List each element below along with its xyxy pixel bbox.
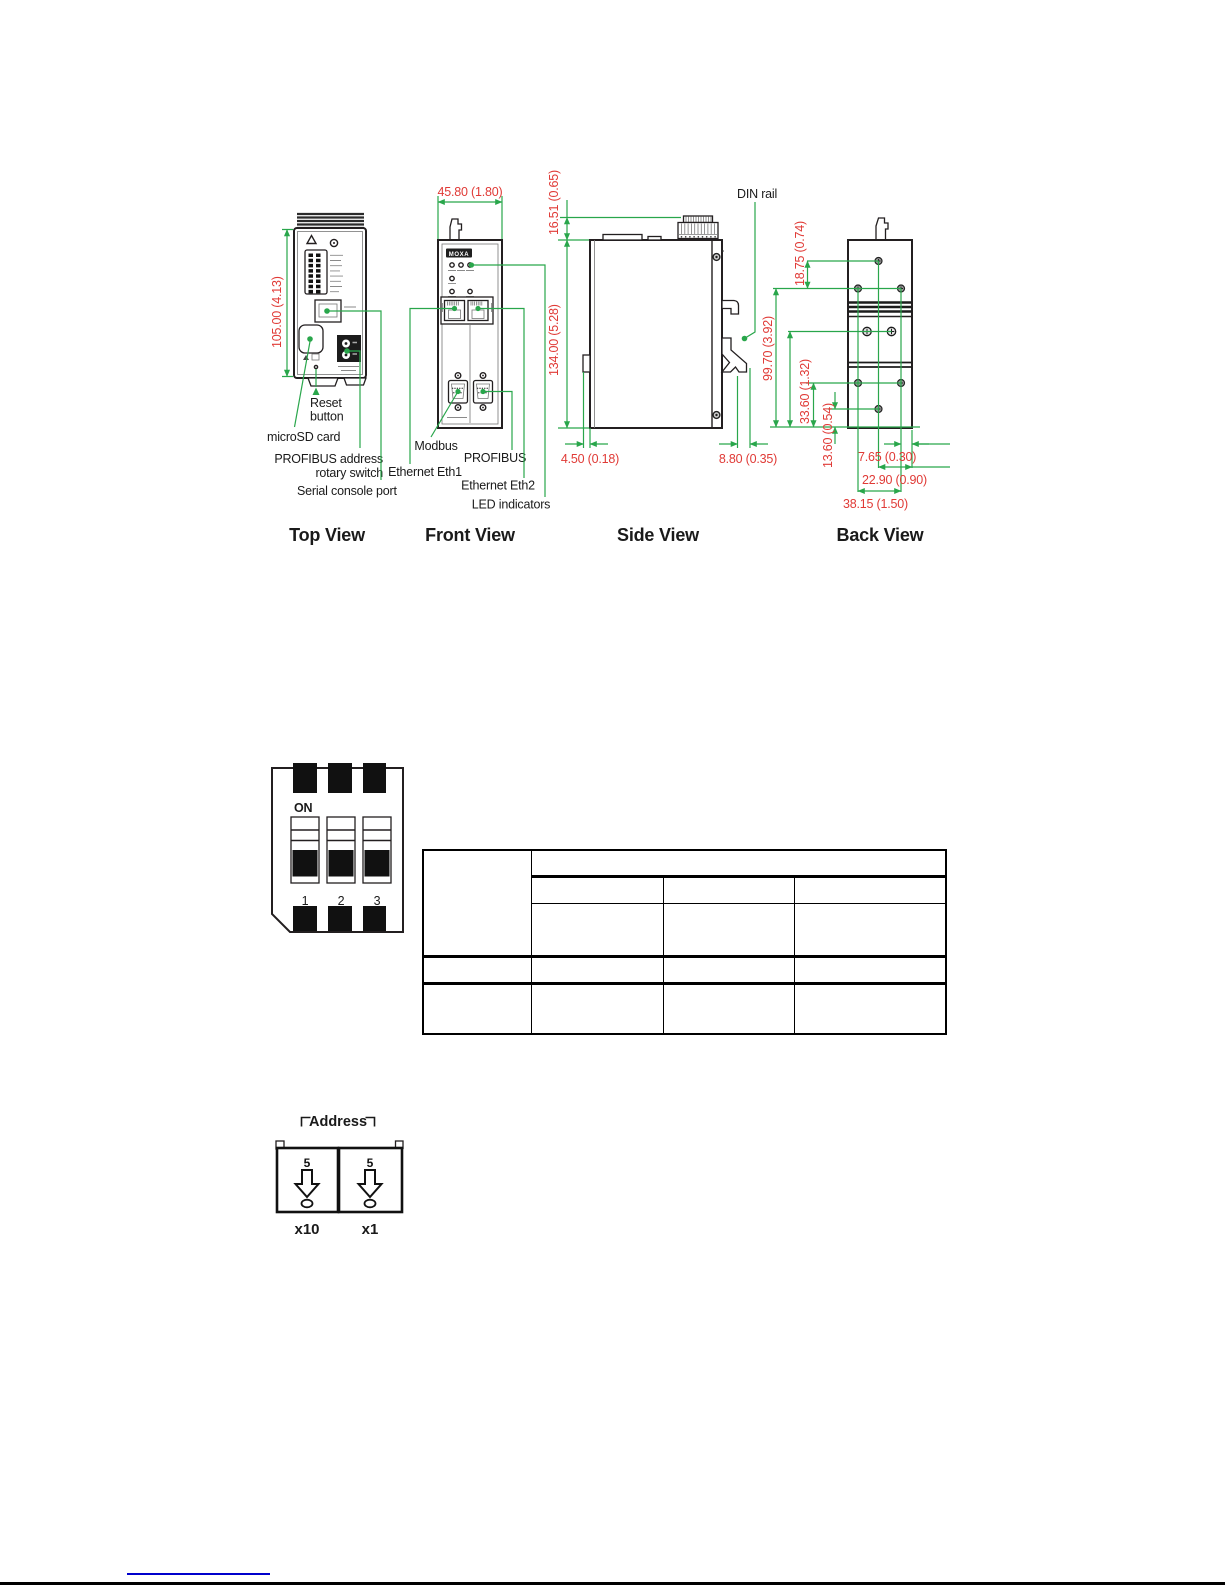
view-caption-front: Front View [425,525,516,545]
table-cell [794,876,946,903]
rotary-label-x1: x1 [362,1221,379,1238]
terminal-block-side [678,216,718,239]
top-view-height-dimension: 105.00 (4.13) [270,230,293,377]
table-cell [663,983,794,1034]
ethernet-ports [441,297,493,324]
callout-label-profibus: PROFIBUS [464,451,526,465]
table-cell [531,903,663,956]
footer-link-underline[interactable] [127,1573,270,1575]
dip-position-2: 2 [338,894,345,908]
bottom-connector [308,378,338,386]
dip-slider-3 [363,817,391,883]
table-cell [531,956,663,983]
table-cell [663,876,794,903]
table-cell [794,983,946,1034]
rotary-address-drawing: Address 5 5 x10 x1 [276,1114,403,1238]
dip-position-1: 1 [302,894,309,908]
side-view-body [590,240,722,428]
svg-text:MOXA: MOXA [449,252,469,258]
dip-position-3: 3 [374,894,381,908]
callout-label-profibus-address: PROFIBUS address [274,452,383,466]
dim-label-front-width: 45.80 (1.80) [437,185,502,199]
view-caption-side: Side View [617,525,700,545]
moxa-logo: MOXA [446,249,472,259]
dim-label-bottom-screw: 13.60 (0.54) [821,403,835,468]
rotary-switch-x1: 5 [339,1148,402,1212]
dim-label-body-height: 134.00 (5.28) [547,304,561,376]
dim-label-top-height: 105.00 (4.13) [270,276,284,348]
dim-label-width-mid: 22.90 (0.90) [862,473,927,487]
dim-label-screw-span: 99.70 (3.92) [761,316,775,381]
dip-on-label: ON [294,801,313,815]
table-cell [423,850,531,956]
dim-label-terminal: 16.51 (0.65) [547,170,561,235]
callout-label-serial-console: Serial console port [297,484,397,498]
callout-label-reset-2: button [310,410,344,424]
din-clip-tab [450,219,462,240]
side-view-drawing: DIN rail 16.51 (0.65) 134.00 (5.28) 4.50… [547,170,777,545]
dim-label-top-screw: 18.75 (0.74) [793,221,807,286]
table-cell [794,956,946,983]
table-cell [531,983,663,1034]
rotary-dial-value-x10: 5 [304,1156,311,1170]
front-view-drawing: 45.80 (1.80) MOXA [388,185,550,545]
callout-label-microsd: microSD card [267,430,341,444]
table-cell [531,850,946,876]
callout-label-rotary-switch: rotary switch [315,466,383,480]
rotary-label-x10: x10 [294,1221,319,1238]
rotary-title: Address [309,1114,367,1130]
table-cell [663,903,794,956]
mechanical-drawings: 105.00 (4.13) Reset button microSD card … [0,0,1225,1585]
callout-label-led: LED indicators [472,498,551,512]
dim-label-width-large: 38.15 (1.50) [843,497,908,511]
din-rail-cap [297,214,364,228]
rotary-switch-x10: 5 [277,1148,338,1212]
side-connector-bump [583,355,590,372]
back-view-drawing: 18.75 (0.74) 99.70 (3.92) 33.60 (1.32) 1… [761,218,950,545]
dip-slider-1 [291,817,319,883]
callout-label-modbus: Modbus [414,439,457,453]
table-cell [531,876,663,903]
din-rail-clip [722,301,747,373]
table-cell [423,956,531,983]
table-cell [423,983,531,1034]
dim-label-bottom-left: 4.50 (0.18) [561,452,619,466]
bottom-connector [344,378,366,385]
din-clip-tab-back [876,218,888,240]
callout-label-din-rail: DIN rail [737,187,777,201]
config-table [422,849,947,1035]
dim-label-bottom-right: 8.80 (0.35) [719,452,777,466]
callout-label-eth1: Ethernet Eth1 [388,465,462,479]
callout-label-eth2: Ethernet Eth2 [461,479,535,493]
view-caption-back: Back View [837,525,925,545]
dip-slider-2 [327,817,355,883]
manual-page: 105.00 (4.13) Reset button microSD card … [0,0,1225,1585]
view-caption-top: Top View [289,525,366,545]
table-cell [663,956,794,983]
front-width-dimension: 45.80 (1.80) [437,185,502,239]
table-cell [794,903,946,956]
dim-label-lower-screw: 33.60 (1.32) [798,359,812,424]
dip-switch-drawing: ON 1 2 3 [272,763,403,932]
callout-label-reset: Reset [310,396,342,410]
dim-label-width-small: 7.65 (0.30) [858,450,916,464]
rotary-dial-value-x1: 5 [367,1156,374,1170]
top-view-drawing: 105.00 (4.13) Reset button microSD card … [267,214,397,545]
